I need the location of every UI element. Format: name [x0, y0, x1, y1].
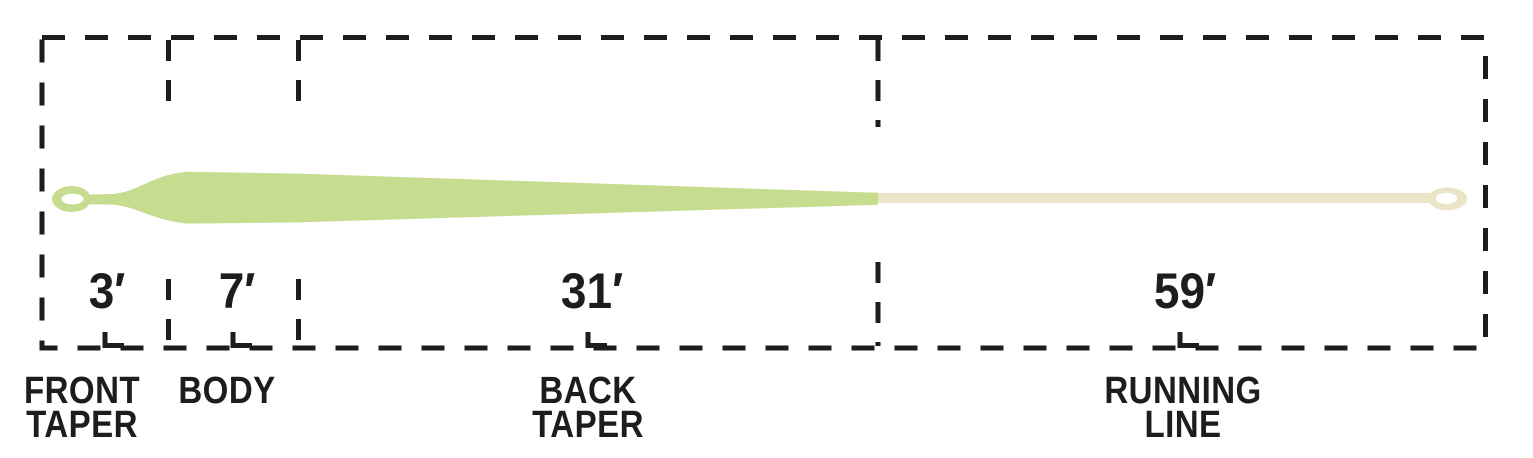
section-label-body: BODY — [178, 374, 275, 408]
front-loop-hole — [62, 194, 84, 205]
section-label-front-taper: FRONT TAPER — [24, 374, 140, 442]
section-label-back-taper: BACK TAPER — [532, 374, 644, 442]
tick-front-taper — [105, 332, 124, 346]
running-line-segment — [876, 193, 1438, 203]
fly-line-shape-group — [52, 172, 1467, 224]
length-label-front-taper: 3′ — [89, 265, 126, 317]
fly-line-taper-diagram: 3′ 7′ 31′ 59′ FRONT TAPER BODY BACK TAPE… — [0, 0, 1533, 458]
tick-back-taper — [588, 332, 607, 346]
tick-body — [233, 332, 252, 346]
length-label-body: 7′ — [219, 265, 256, 317]
section-label-line: LINE — [1104, 408, 1261, 442]
section-label-line: BACK — [532, 374, 644, 408]
length-label-back-taper: 31′ — [561, 265, 623, 317]
rear-loop-hole — [1436, 193, 1458, 204]
line-head-taper-profile — [87, 172, 878, 224]
length-label-running-line: 59′ — [1154, 265, 1216, 317]
section-label-line: TAPER — [24, 408, 140, 442]
section-label-line: TAPER — [532, 408, 644, 442]
section-label-running-line: RUNNING LINE — [1104, 374, 1261, 442]
section-label-line: RUNNING — [1104, 374, 1261, 408]
tick-running-line — [1180, 332, 1199, 346]
section-label-line: BODY — [178, 374, 275, 408]
section-label-line: FRONT — [24, 374, 140, 408]
